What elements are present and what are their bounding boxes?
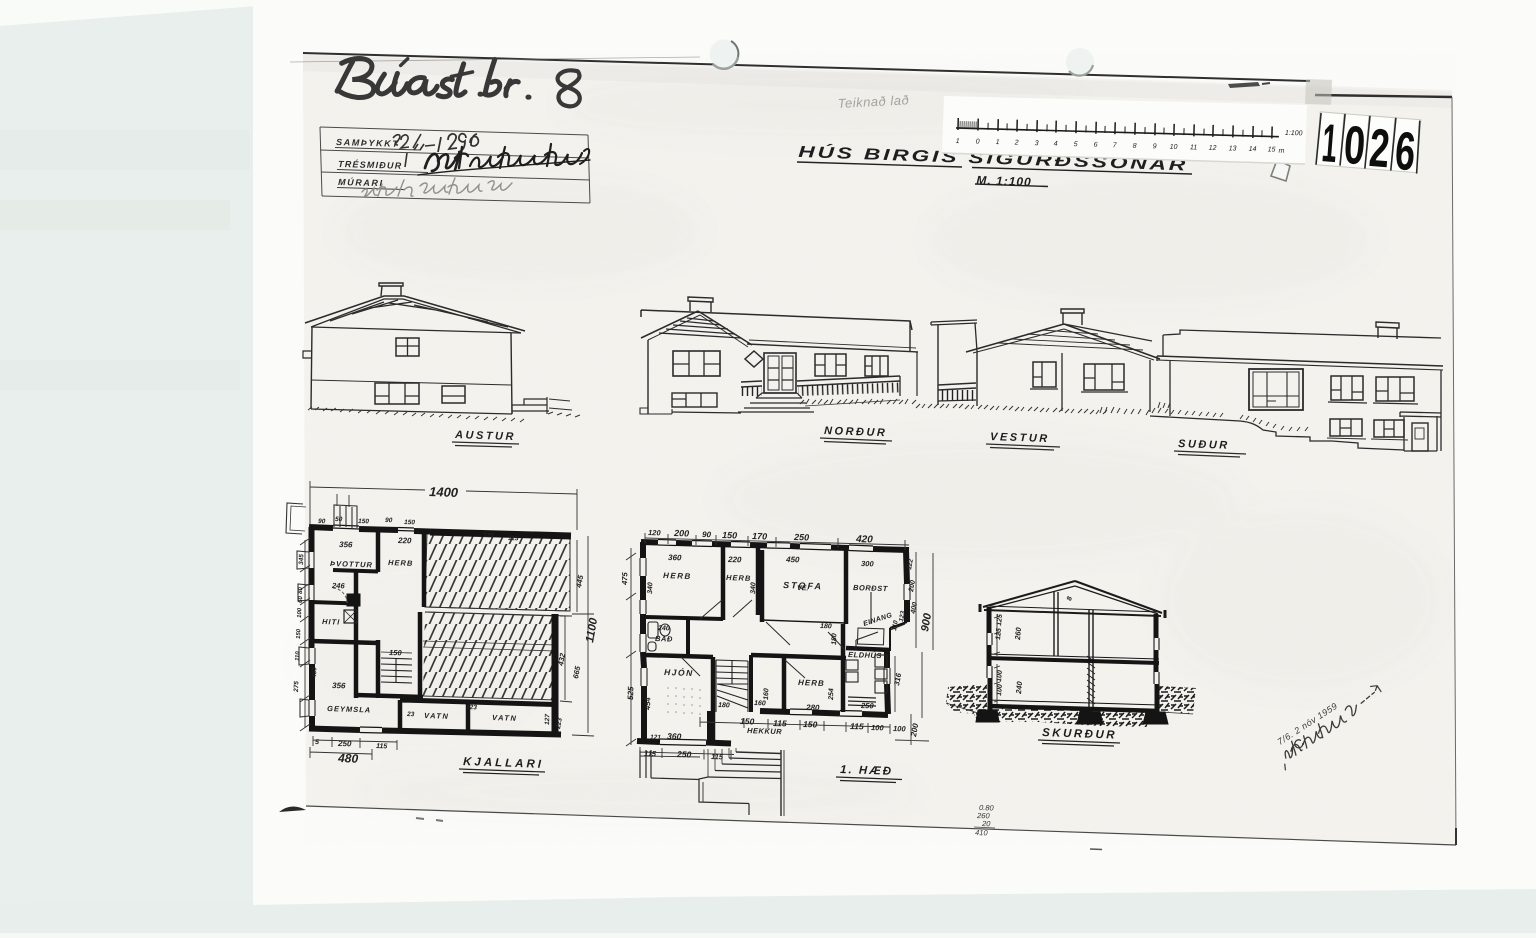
svg-text:125: 125	[483, 532, 494, 539]
svg-text:115: 115	[644, 749, 657, 758]
svg-text:356: 356	[339, 540, 353, 549]
svg-text:345: 345	[298, 554, 305, 565]
svg-text:SAMÞYKKT: SAMÞYKKT	[336, 137, 400, 149]
svg-text:TRÉSMIÐUR: TRÉSMIÐUR	[338, 159, 403, 171]
svg-text:50: 50	[335, 516, 343, 523]
svg-text:150: 150	[389, 648, 403, 657]
svg-text:9: 9	[1153, 143, 1157, 150]
svg-text:15: 15	[1268, 146, 1276, 153]
svg-text:120: 120	[648, 528, 662, 537]
svg-text:VATN: VATN	[492, 713, 518, 723]
svg-text:80: 80	[298, 587, 304, 595]
svg-text:ÞVOTTUR: ÞVOTTUR	[330, 559, 373, 569]
svg-text:115: 115	[508, 535, 519, 542]
svg-text:220: 220	[727, 555, 742, 565]
svg-text:180: 180	[820, 623, 832, 630]
svg-text:240: 240	[657, 625, 670, 632]
svg-text:M. 1:100: M. 1:100	[976, 173, 1032, 189]
svg-text:160: 160	[763, 688, 770, 700]
svg-text:14: 14	[1249, 146, 1257, 153]
svg-text:SUÐUR: SUÐUR	[1178, 438, 1230, 452]
svg-text:BAÐ: BAÐ	[655, 634, 673, 644]
svg-text:260: 260	[1013, 626, 1023, 641]
svg-text:246: 246	[331, 581, 346, 590]
svg-text:250: 250	[793, 532, 809, 543]
svg-text:150: 150	[740, 716, 755, 726]
svg-text:525: 525	[626, 686, 635, 700]
svg-text:240: 240	[1014, 680, 1024, 695]
svg-text:1: 1	[956, 138, 960, 145]
svg-text:6: 6	[1094, 142, 1098, 149]
svg-text:1: 1	[996, 139, 1000, 146]
svg-text:110: 110	[295, 651, 301, 661]
svg-text:125: 125	[995, 628, 1003, 640]
svg-text:360: 360	[667, 731, 682, 741]
svg-text:10: 10	[1170, 144, 1178, 151]
svg-text:HITI: HITI	[322, 617, 340, 627]
svg-text:1:100: 1:100	[1285, 130, 1303, 137]
svg-text:2: 2	[1014, 140, 1019, 147]
svg-text:HEKKUR: HEKKUR	[747, 726, 782, 736]
svg-text:23: 23	[406, 711, 415, 718]
svg-text:200: 200	[673, 528, 689, 539]
svg-text:150: 150	[296, 628, 302, 639]
svg-text:3: 3	[1035, 140, 1039, 147]
svg-text:115: 115	[711, 752, 724, 761]
svg-text:180: 180	[718, 702, 730, 709]
svg-text:1400: 1400	[429, 484, 459, 500]
svg-text:VATN: VATN	[424, 711, 450, 721]
svg-text:280: 280	[805, 703, 820, 713]
svg-text:HERB: HERB	[388, 558, 414, 568]
svg-text:60: 60	[298, 596, 304, 604]
svg-text:4: 4	[1054, 141, 1058, 148]
svg-text:150: 150	[722, 530, 737, 541]
svg-text:5: 5	[315, 739, 319, 746]
svg-text:HERB: HERB	[663, 571, 692, 581]
svg-text:0: 0	[976, 138, 980, 145]
svg-text:NORÐUR: NORÐUR	[824, 425, 888, 439]
svg-text:100: 100	[871, 723, 885, 732]
svg-text:ELDHÚS: ELDHÚS	[848, 650, 882, 660]
svg-text:AUSTUR: AUSTUR	[454, 429, 516, 443]
svg-text:420: 420	[855, 534, 873, 546]
svg-text:254: 254	[828, 688, 835, 701]
svg-text:1. HÆÐ: 1. HÆÐ	[840, 764, 893, 778]
svg-text:GEYMSLA: GEYMSLA	[327, 704, 371, 715]
svg-text:450: 450	[311, 667, 318, 679]
svg-text:220: 220	[397, 536, 412, 546]
svg-text:360: 360	[668, 553, 682, 562]
svg-text:VE.: VE.	[797, 585, 809, 592]
svg-text:123: 123	[466, 704, 477, 711]
svg-text:HERB: HERB	[798, 678, 825, 688]
svg-text:250: 250	[676, 749, 692, 760]
svg-text:13: 13	[1229, 145, 1237, 152]
svg-text:170: 170	[752, 531, 767, 542]
svg-text:300: 300	[861, 559, 875, 568]
svg-text:160: 160	[754, 700, 766, 707]
svg-text:90: 90	[318, 518, 326, 525]
svg-text:127: 127	[544, 714, 551, 725]
svg-text:115: 115	[850, 721, 864, 731]
svg-text:HERB: HERB	[726, 573, 752, 583]
svg-text:340: 340	[647, 582, 654, 594]
svg-text:8: 8	[1133, 143, 1137, 150]
svg-text:BORÐST: BORÐST	[853, 583, 889, 593]
svg-text:450: 450	[785, 555, 800, 565]
svg-text:410: 410	[975, 828, 989, 837]
svg-text:VESTUR: VESTUR	[990, 431, 1050, 445]
svg-text:180: 180	[831, 633, 838, 645]
svg-text:150: 150	[358, 518, 369, 525]
svg-text:250: 250	[860, 701, 875, 710]
svg-text:11: 11	[1190, 144, 1198, 151]
svg-text:150: 150	[404, 519, 415, 526]
svg-text:20: 20	[981, 819, 991, 828]
svg-text:150: 150	[803, 719, 818, 729]
svg-text:475: 475	[620, 571, 629, 586]
svg-text:HJÓN: HJÓN	[664, 666, 694, 678]
svg-text:100: 100	[893, 724, 907, 733]
svg-text:454: 454	[643, 696, 652, 711]
svg-text:90: 90	[385, 517, 393, 524]
svg-text:480: 480	[337, 751, 359, 766]
svg-text:90: 90	[702, 530, 712, 539]
svg-text:115: 115	[376, 743, 388, 750]
svg-text:250: 250	[337, 739, 352, 749]
svg-text:100: 100	[297, 607, 303, 618]
svg-text:5: 5	[1074, 141, 1078, 148]
svg-text:340: 340	[750, 582, 757, 594]
svg-text:275: 275	[293, 681, 300, 693]
svg-text:MÚRARI: MÚRARI	[338, 176, 384, 188]
svg-text:121: 121	[650, 734, 661, 741]
svg-text:356: 356	[332, 681, 346, 690]
svg-text:12: 12	[1209, 145, 1217, 152]
svg-text:m: m	[1278, 148, 1284, 155]
